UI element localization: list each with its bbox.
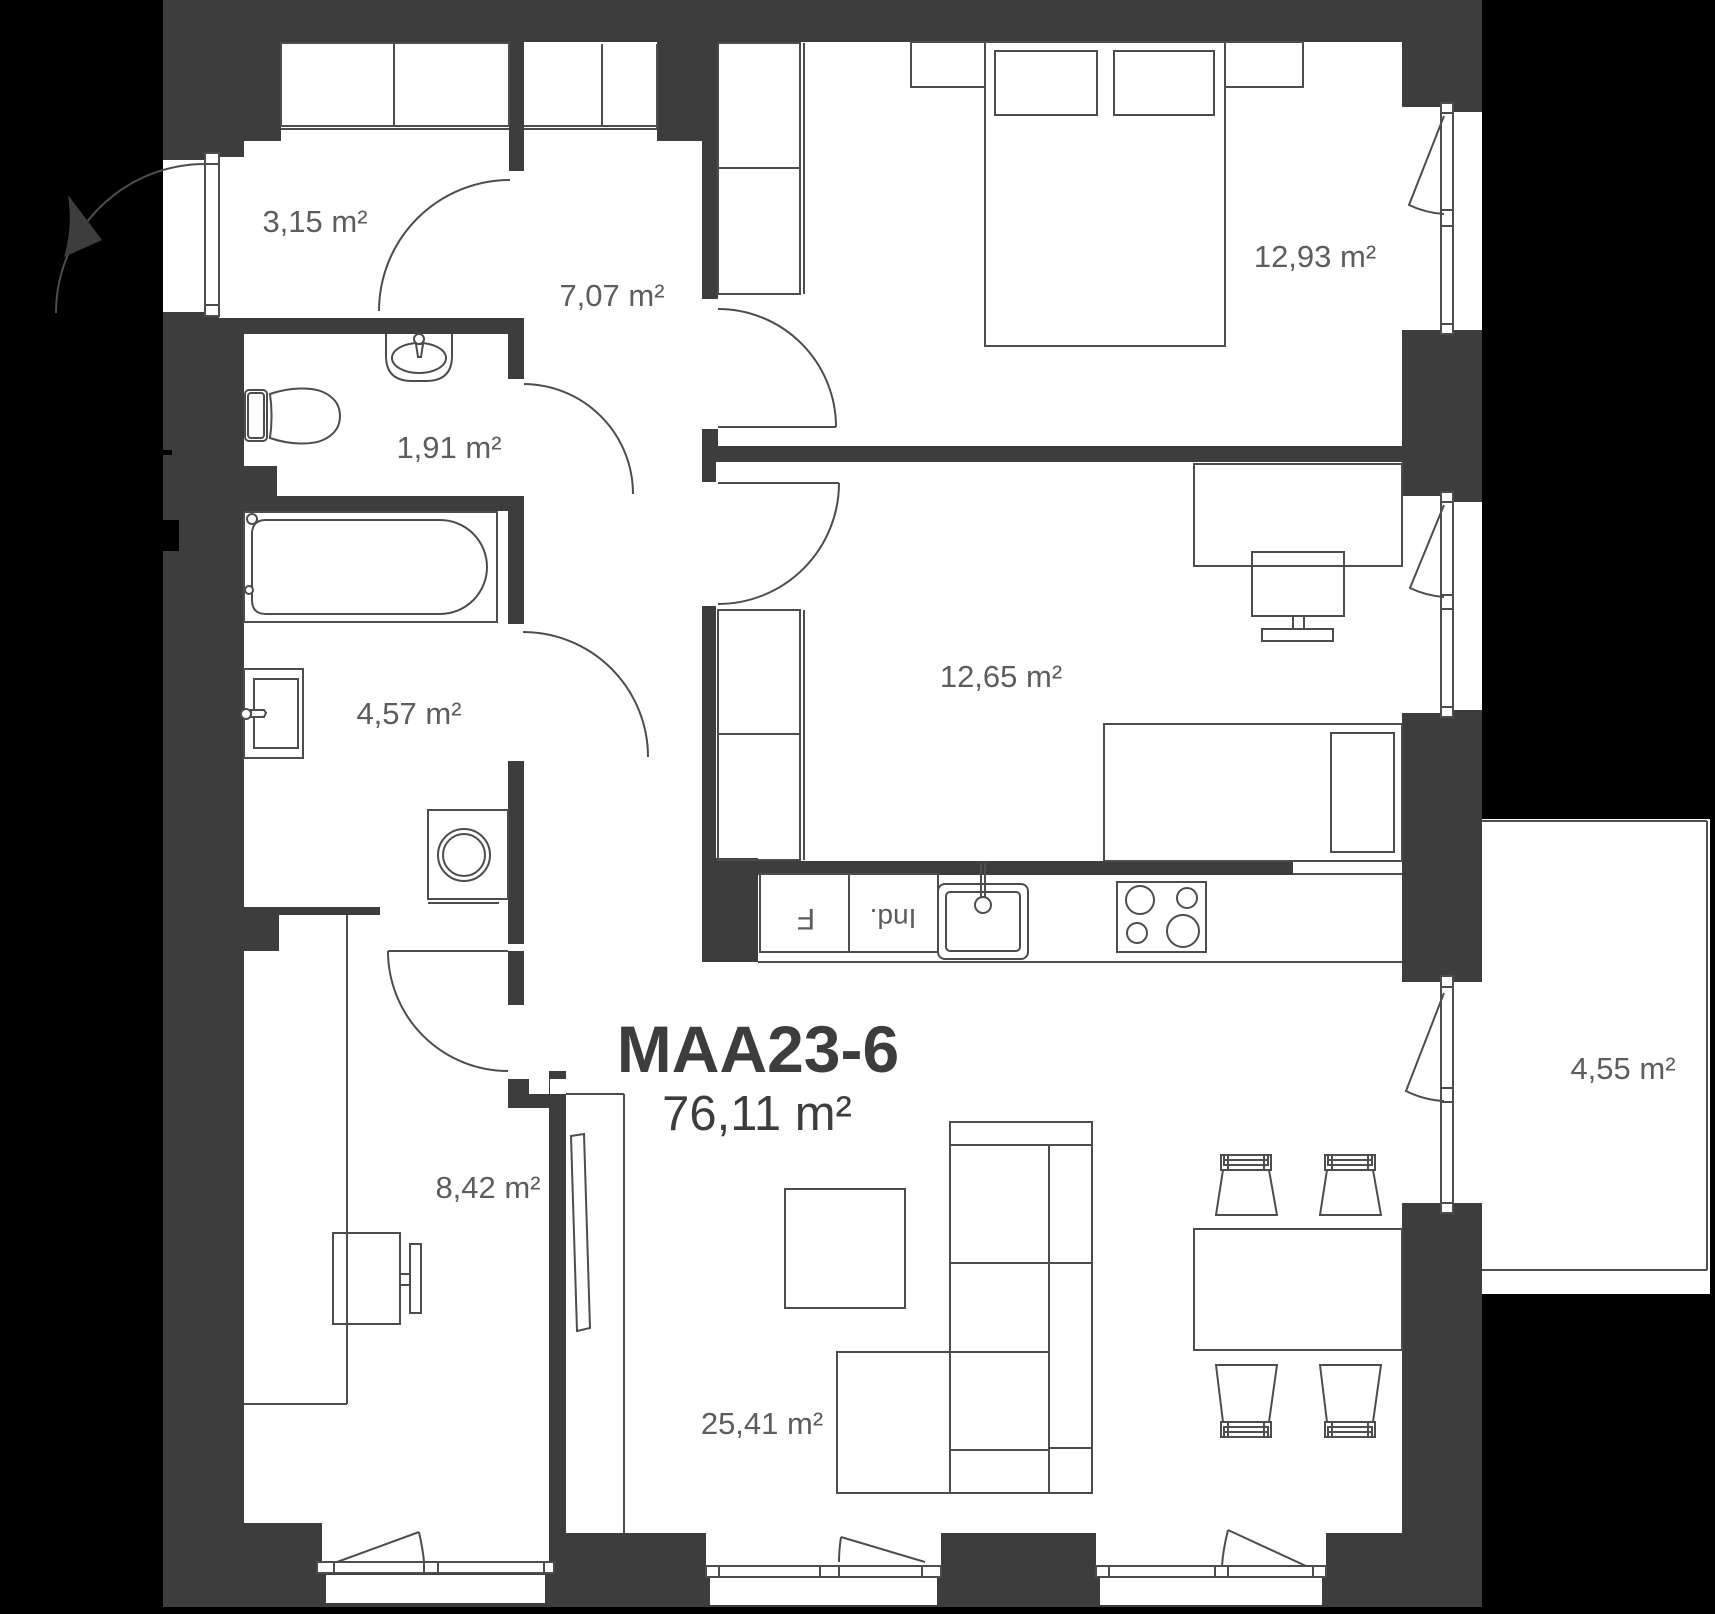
svg-text:1,91 m²: 1,91 m² [396,430,501,465]
svg-text:MAA23-6: MAA23-6 [617,1012,899,1086]
svg-text:76,11 m²: 76,11 m² [662,1087,852,1141]
svg-text:25,41 m²: 25,41 m² [701,1406,823,1441]
svg-text:4,55 m²: 4,55 m² [1570,1051,1675,1086]
svg-text:Ind.: Ind. [870,903,917,934]
svg-text:7,07 m²: 7,07 m² [559,278,664,313]
svg-text:F: F [797,902,815,935]
svg-text:4,57 m²: 4,57 m² [356,696,461,731]
svg-text:8,42 m²: 8,42 m² [435,1170,540,1205]
svg-text:3,15 m²: 3,15 m² [262,204,367,239]
svg-text:12,93 m²: 12,93 m² [1254,239,1376,274]
svg-text:12,65 m²: 12,65 m² [940,659,1062,694]
